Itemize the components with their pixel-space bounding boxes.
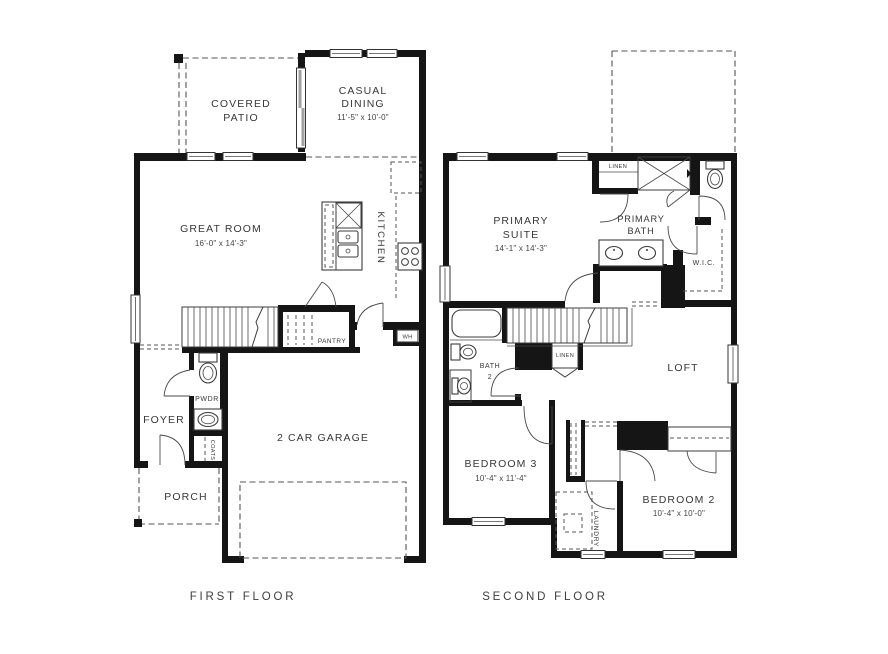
first-floor-stairs: [182, 307, 278, 347]
bath2-door: [491, 368, 521, 396]
floor-plan-page: COVERED PATIO CASUAL DINING 11'-5" x 10'…: [0, 0, 888, 654]
label-primary-suite-2: SUITE: [503, 229, 539, 241]
garage-entry-door: [357, 303, 383, 327]
laundry-chase: [571, 423, 576, 475]
floor-plan-drawing: COVERED PATIO CASUAL DINING 11'-5" x 10'…: [0, 0, 888, 654]
stair-railing-open: [632, 302, 658, 306]
label-covered-patio: COVERED: [211, 98, 271, 110]
label-bath2-2: 2: [488, 374, 493, 381]
garage-door: [240, 482, 406, 558]
label-pantry: PANTRY: [318, 338, 347, 345]
bathtub: [452, 310, 501, 337]
sliding-door-panel: [302, 108, 305, 146]
first-floor-walls: [134, 50, 426, 563]
label-linen-upper: LINEN: [609, 164, 627, 170]
sink-backsplash: [451, 344, 460, 360]
second-floor-plan: PRIMARY SUITE 14'-1" x 14'-3" PRIMARY BA…: [440, 51, 738, 603]
loft-bedroom2-divide: [585, 422, 620, 426]
caption-second-floor: SECOND FLOOR: [482, 591, 608, 603]
label-casual-dining-dims: 11'-5" x 10'-0": [337, 113, 389, 122]
label-primary-suite: PRIMARY: [493, 215, 548, 227]
front-door: [160, 435, 185, 465]
label-casual-dining-2: DINING: [341, 98, 384, 110]
label-kitchen: KITCHEN: [375, 212, 386, 265]
bedroom2-door: [620, 450, 655, 481]
kitchen-sink: [338, 231, 358, 243]
refrigerator: [391, 162, 421, 193]
label-bedroom2-dims: 10'-4" x 10'-0": [653, 509, 705, 518]
bedroom2-closet: [668, 427, 731, 451]
toilet-bowl: [458, 378, 471, 394]
bedroom2-closet-door: [687, 451, 716, 473]
label-foyer: FOYER: [143, 414, 185, 426]
toilet-tank: [706, 161, 724, 169]
toilet-bowl: [200, 363, 217, 383]
sliding-door-panel: [299, 70, 302, 108]
toilet-room-door: [699, 196, 725, 220]
label-bedroom3: BEDROOM 3: [465, 458, 538, 470]
washer-dryer: [556, 492, 592, 549]
label-bath2: BATH: [480, 363, 501, 370]
powder-door: [164, 370, 190, 396]
stair-break-line: [252, 307, 263, 347]
primary-bath-fixtures: [599, 157, 724, 266]
label-coats: COATS: [209, 440, 215, 461]
label-wic: W.I.C.: [693, 260, 716, 267]
label-great-room-dims: 16'-0" x 14'-3": [195, 239, 247, 248]
wic-door: [668, 226, 697, 254]
label-garage: 2 CAR GARAGE: [277, 432, 369, 444]
shower-door: [667, 190, 690, 207]
kitchen-island: [322, 202, 362, 270]
stove: [398, 243, 422, 270]
toilet-tank: [199, 353, 217, 362]
second-floor-stairs: [507, 308, 632, 346]
laundry-door: [586, 481, 617, 509]
label-linen-lower: LINEN: [556, 353, 574, 359]
label-great-room: GREAT ROOM: [180, 223, 262, 235]
roof-below-outline: [612, 51, 735, 153]
label-water-heater: WH: [402, 335, 412, 341]
label-bedroom3-dims: 10'-4" x 11'-4": [475, 474, 527, 483]
pantry-shelves: [288, 315, 312, 345]
great-room-door: [305, 282, 336, 307]
label-primary-bath: PRIMARY: [617, 214, 664, 224]
stair-break-line: [584, 308, 595, 343]
label-casual-dining: CASUAL: [339, 85, 388, 97]
label-primary-suite-dims: 14'-1" x 14'-3": [495, 244, 547, 253]
caption-first-floor: FIRST FLOOR: [190, 591, 297, 603]
label-laundry: LAUNDRY: [592, 511, 599, 547]
first-floor-plan: COVERED PATIO CASUAL DINING 11'-5" x 10'…: [131, 50, 426, 604]
toilet-bowl: [708, 170, 723, 189]
label-loft: LOFT: [667, 362, 698, 374]
bath2-fixtures: [450, 310, 502, 402]
label-primary-bath-2: BATH: [627, 226, 654, 236]
label-porch: PORCH: [164, 491, 207, 503]
powder-room-fixtures: [194, 353, 222, 430]
label-covered-patio-2: PATIO: [223, 112, 258, 124]
label-powder: PWDR: [195, 396, 219, 403]
sink-bowl: [460, 345, 476, 359]
label-bedroom2: BEDROOM 2: [643, 494, 716, 506]
bedroom3-door: [524, 406, 552, 444]
